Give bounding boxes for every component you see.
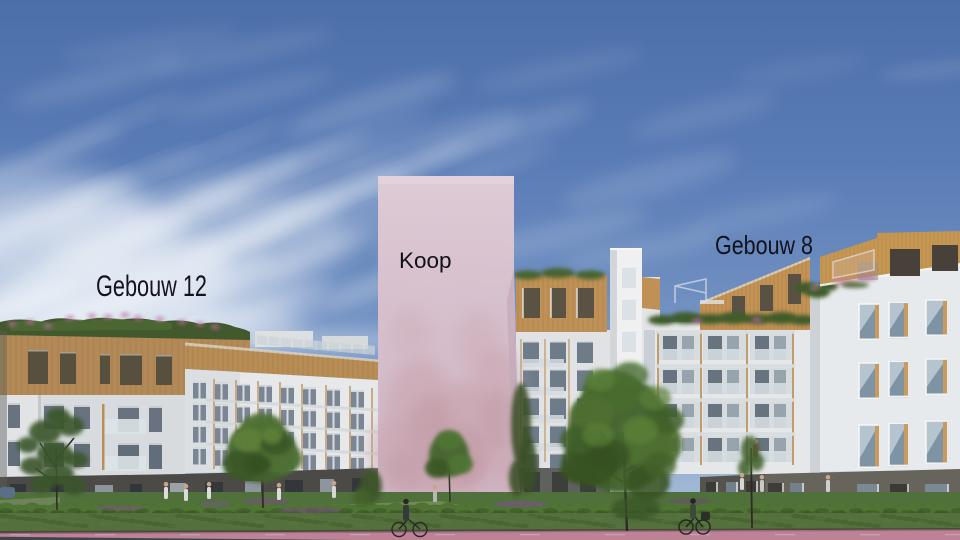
svg-text:Gebouw 12: Gebouw 12 (96, 270, 207, 303)
svg-text:Koop: Koop (399, 248, 452, 273)
svg-text:Gebouw 8: Gebouw 8 (715, 230, 813, 260)
